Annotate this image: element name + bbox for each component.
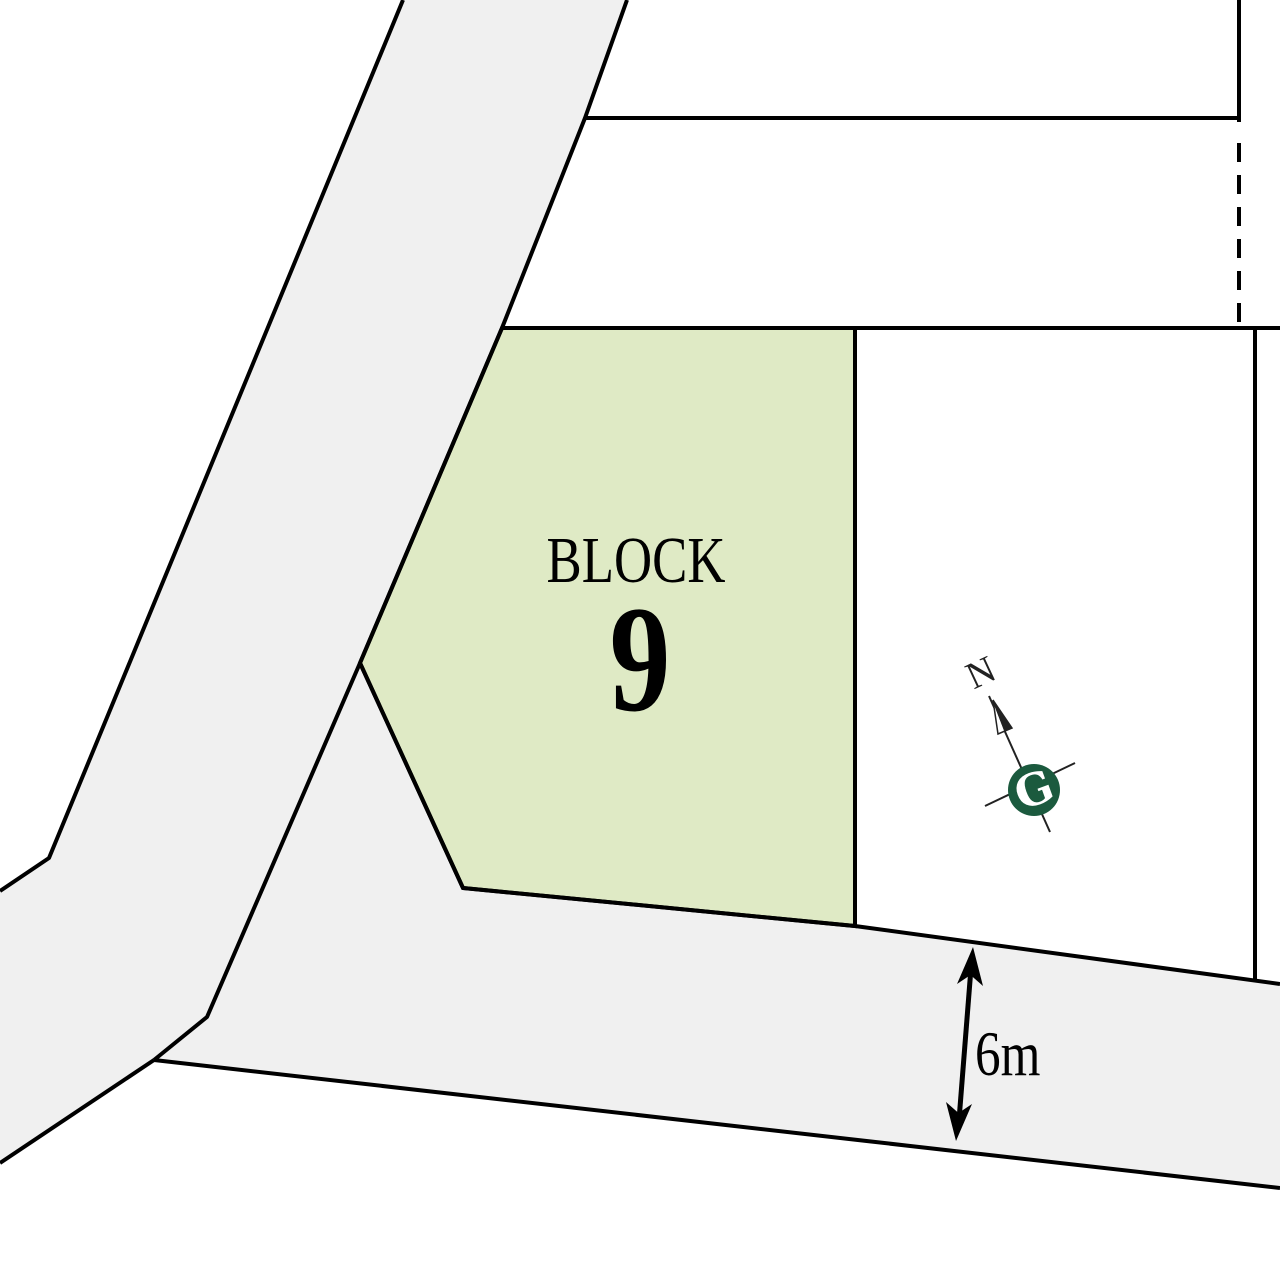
north-compass-icon: G N xyxy=(960,648,1075,832)
road-width-label: 6m xyxy=(975,1018,1040,1090)
plot-map-canvas: 6m BLOCK 9 G N xyxy=(0,0,1280,1280)
compass-north-label: N xyxy=(960,648,1003,698)
block-number: 9 xyxy=(610,574,671,743)
company-logo-letter: G xyxy=(1008,760,1061,821)
plot-map: 6m BLOCK 9 G N xyxy=(0,0,1280,1280)
